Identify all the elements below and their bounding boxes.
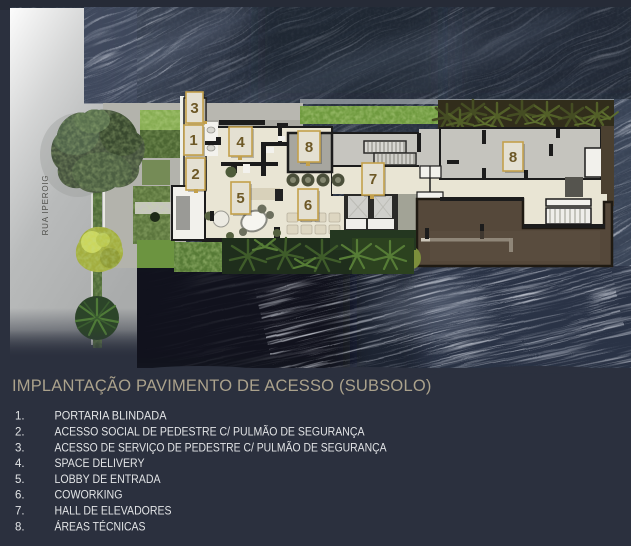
svg-text:5: 5 [236,190,244,207]
svg-text:ACESSO SOCIAL DE PEDESTRE C/ P: ACESSO SOCIAL DE PEDESTRE C/ PULMÃO DE S… [55,426,365,439]
svg-text:3.: 3. [15,442,25,454]
svg-text:ACESSO DE SERVIÇO DE PEDESTRE: ACESSO DE SERVIÇO DE PEDESTRE C/ PULMÃO … [55,441,387,454]
svg-text:HALL DE ELEVADORES: HALL DE ELEVADORES [55,506,172,518]
svg-text:6.: 6. [15,490,25,502]
svg-text:5.: 5. [15,474,25,486]
svg-text:1.: 1. [15,411,25,423]
svg-text:7: 7 [369,171,377,188]
svg-text:8.: 8. [15,521,25,533]
svg-text:LOBBY DE ENTRADA: LOBBY DE ENTRADA [55,474,161,486]
svg-text:IMPLANTAÇÃO PAVIMENTO DE ACESS: IMPLANTAÇÃO PAVIMENTO DE ACESSO (SUBSOLO… [12,375,432,395]
svg-text:SPACE DELIVERY: SPACE DELIVERY [55,458,145,470]
svg-text:8: 8 [305,139,313,156]
svg-text:8: 8 [509,149,517,166]
svg-text:3: 3 [190,100,198,117]
svg-text:7.: 7. [15,506,25,518]
svg-text:2: 2 [191,166,199,183]
svg-text:6: 6 [304,197,312,214]
svg-text:ÁREAS TÉCNICAS: ÁREAS TÉCNICAS [55,520,146,533]
svg-text:RUA IPEROIG: RUA IPEROIG [41,175,50,236]
svg-text:PORTARIA BLINDADA: PORTARIA BLINDADA [55,411,167,423]
svg-text:4: 4 [236,134,245,151]
svg-text:4.: 4. [15,458,25,470]
svg-text:2.: 2. [15,427,25,439]
svg-text:1: 1 [189,132,197,149]
svg-text:COWORKING: COWORKING [55,490,123,502]
